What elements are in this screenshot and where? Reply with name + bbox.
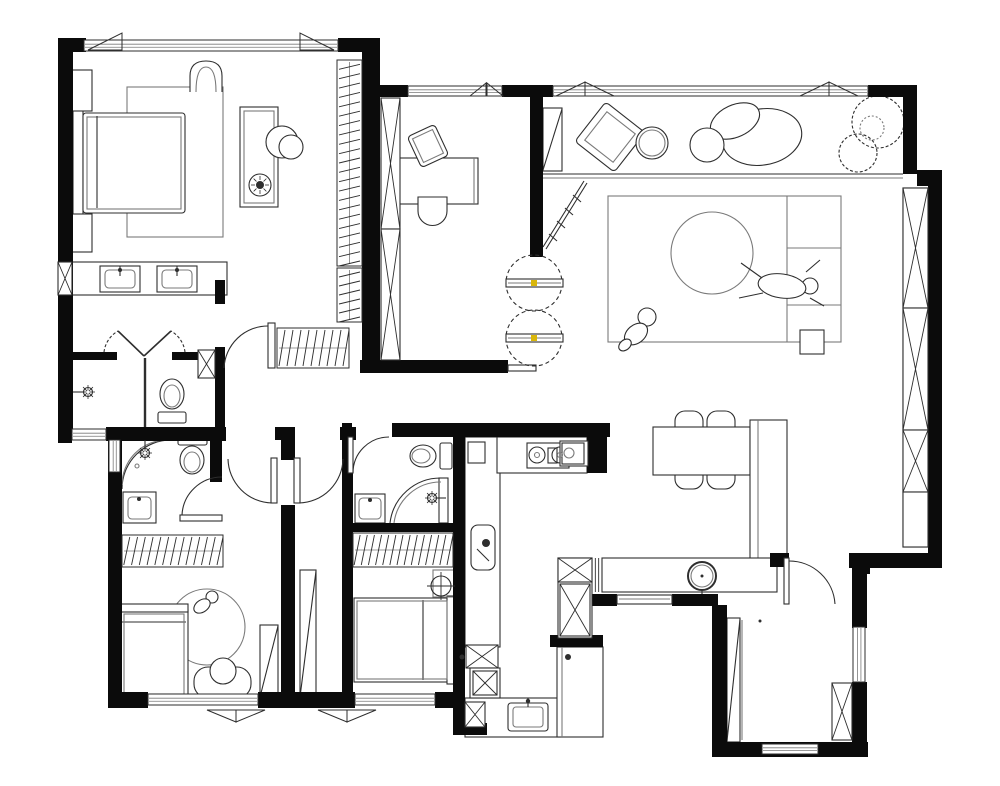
- drying-rack-pole-b: [546, 183, 587, 249]
- living-cabinet-x1: [903, 188, 928, 308]
- fridge-louver: [592, 558, 602, 592]
- door-laundry-arc: [789, 561, 835, 604]
- wall-top-master-right: [338, 38, 380, 52]
- wall-laundry-left: [712, 605, 727, 757]
- dishwasher-dot: [460, 655, 465, 660]
- drying-rack-pole-a: [543, 181, 584, 247]
- wall-bedroom1-right: [281, 505, 295, 705]
- casement-icon-bedroom1-a: [207, 710, 236, 722]
- wall-bedroom2-top-right: [392, 423, 610, 437]
- drying-rack-tick-2: [557, 221, 565, 228]
- wall-study-top-left: [380, 85, 408, 97]
- kitchen-prep-board: [471, 525, 495, 570]
- wall-laundry-right-upper: [852, 568, 867, 628]
- kitchen-counter-right: [557, 647, 603, 737]
- shower-head-master-spray: [81, 385, 95, 399]
- wall-corridor-bl-2: [106, 427, 226, 441]
- casement-icon-bedroom1-b: [236, 710, 265, 722]
- wall-bedroom1-left: [108, 433, 122, 705]
- door-laundry-leaf: [784, 558, 789, 604]
- pet-bed-cushion: [210, 658, 236, 684]
- drying-rack-tick-1: [549, 234, 557, 241]
- ensuite1-shower-glass: [122, 440, 171, 489]
- window-ensuite1-left: [109, 440, 120, 472]
- window-bedroom2-bottom: [355, 694, 435, 705]
- ceiling-light-master-hub: [256, 181, 264, 189]
- plant-foliage-large: [852, 96, 904, 148]
- sliding-panel-dot: [759, 620, 762, 623]
- window-study-top: [408, 86, 502, 96]
- knife-handle-dot: [482, 539, 490, 547]
- ensuite2-shower-glass: [390, 478, 441, 523]
- bed2: [354, 598, 454, 682]
- laundry-cabinet-x: [832, 683, 852, 740]
- bed1: [120, 610, 188, 698]
- dining-table: [653, 427, 750, 475]
- master-bed-headboard: [73, 110, 83, 216]
- dresser: [240, 107, 278, 207]
- study-bookcase-lower: [381, 229, 400, 360]
- balcony-side-table: [636, 127, 668, 159]
- nightstand-bottom: [72, 214, 92, 252]
- dresser-stool-b: [279, 135, 303, 159]
- door-bedroom2-hall-leaf: [294, 458, 300, 503]
- wall-niche-left: [592, 594, 617, 606]
- door-bedroom2-leaf: [348, 437, 353, 473]
- wall-study-shared: [362, 50, 380, 372]
- wall-study-living-divider: [530, 97, 543, 257]
- bed2-headboard: [447, 596, 454, 684]
- ensuite2-toilet-bowl: [410, 445, 436, 467]
- wall-bedroom2-left: [342, 437, 353, 705]
- door-bedroom2-hall-arc: [299, 459, 343, 503]
- study-bookcase-upper: [381, 98, 400, 229]
- casement-icon-bedroom2-a: [318, 710, 347, 722]
- window-bedroom1-bottom: [148, 694, 258, 705]
- door-bath-double-right-arc: [171, 331, 185, 352]
- mat-cube-toy: [800, 330, 824, 354]
- door-ensuite1-leaf: [180, 515, 222, 521]
- wall-bath-right: [215, 347, 225, 429]
- window-bath-side: [72, 429, 106, 440]
- wall-mid-bottom: [295, 692, 342, 708]
- window-living-top: [553, 86, 868, 96]
- dining-sideboard: [750, 420, 787, 560]
- oven-x: [473, 671, 497, 695]
- window-laundry-right: [853, 627, 865, 682]
- wall-living-right-outer: [928, 170, 942, 562]
- wall-bath-door-left: [73, 352, 117, 360]
- wall-corridor-bl-1: [58, 427, 72, 443]
- person-figure-leg-1: [806, 260, 820, 272]
- faucet-ensuite2: [368, 498, 372, 502]
- fridge-x-bottom: [560, 584, 590, 636]
- pivot-door-2-accent: [531, 335, 537, 341]
- wall-bedroom2-bottom-right: [435, 692, 465, 708]
- wardrobe-bedroom2: [353, 533, 453, 567]
- hall-wash-counter: [602, 558, 777, 592]
- master-bed: [83, 113, 185, 213]
- casement-icon-bedroom2-b: [347, 710, 376, 722]
- wardrobe-closet-arm: [277, 328, 349, 368]
- ensuite1-drain-dot: [135, 464, 139, 468]
- door-bedroom1-leaf: [271, 458, 277, 503]
- hall-basin-dot: [701, 575, 704, 578]
- wardrobe-master-lower: [337, 268, 362, 322]
- living-cabinet-open: [903, 492, 928, 547]
- plant-foliage-small: [839, 134, 877, 172]
- wall-bedroom1-right-stub: [281, 428, 295, 460]
- living-cabinet-x2: [903, 308, 928, 430]
- door-bath-double-left-arc: [104, 331, 118, 352]
- vanity-cabinet-x: [58, 262, 72, 295]
- kitchen-appliance-x: [465, 702, 485, 727]
- nightstand-top: [72, 70, 92, 111]
- wall-study-top-right: [502, 85, 553, 97]
- balcony-armchair: [575, 102, 645, 172]
- fridge-x-top: [558, 558, 592, 582]
- plant-foliage-detail: [860, 116, 884, 140]
- shower-head-ensuite1-spray: [138, 446, 152, 460]
- toilet-master-tank: [158, 412, 186, 423]
- wardrobe-bedroom1: [122, 535, 223, 567]
- person-figure-torso: [757, 271, 808, 301]
- wall-bedroom2-top-left: [342, 423, 352, 437]
- wall-ensuite1-partition: [210, 430, 222, 482]
- bed1-headboard: [120, 604, 188, 612]
- window-laundry-bottom: [762, 744, 818, 754]
- ensuite2-shower-column: [439, 478, 448, 523]
- wall-ensuite2-bottom: [353, 523, 453, 532]
- shower-head-ensuite2-spray: [425, 491, 439, 505]
- door-bath-double-right-leaf: [144, 331, 171, 356]
- wall-living-right-upper: [903, 95, 917, 174]
- faucet-ensuite1: [137, 497, 141, 501]
- dishwasher-x: [466, 645, 498, 668]
- wall-niche-right: [672, 594, 718, 606]
- door-ensuite1-arc: [182, 477, 222, 515]
- door-bath-double-left-leaf: [118, 331, 144, 356]
- corridor-sill: [508, 365, 536, 371]
- person-figure-arm-2: [739, 293, 763, 298]
- wall-bedroom2-bottom-left: [342, 692, 355, 708]
- wall-kitchen-corner: [587, 427, 607, 473]
- play-mat-circle: [671, 212, 753, 294]
- wardrobe-master-upper: [337, 60, 362, 266]
- ensuite2-toilet-tank: [440, 443, 452, 469]
- door-bedroom2-arc: [353, 437, 389, 473]
- floor-plan-page: [0, 0, 1000, 786]
- door-master-suite-arc: [224, 326, 268, 368]
- wall-bedroom1-bottom-left: [108, 692, 148, 708]
- wall-bath-stub-right: [215, 280, 225, 304]
- wall-top-left-corner: [58, 38, 86, 52]
- counter-right-dot: [565, 654, 571, 660]
- pivot-door-1-accent: [531, 280, 537, 286]
- vanity-counter: [72, 262, 227, 295]
- study-guest-chair: [418, 197, 447, 226]
- kitchen-shelf: [468, 442, 485, 463]
- living-cabinet-x3: [903, 430, 928, 492]
- drying-rack-tick-4: [573, 195, 581, 202]
- wall-bath-door-right: [172, 352, 198, 360]
- drying-rack-tick-3: [565, 208, 573, 215]
- floor-plan-drawing: [0, 0, 1000, 786]
- door-bedroom1-arc: [228, 459, 272, 503]
- door-master-suite-leaf: [268, 323, 275, 368]
- accent-chair: [190, 61, 222, 92]
- bath-shelf-x: [198, 350, 215, 378]
- wall-left-upper: [58, 50, 73, 266]
- lounge-ottoman: [690, 128, 724, 162]
- wall-study-bottom: [360, 360, 508, 373]
